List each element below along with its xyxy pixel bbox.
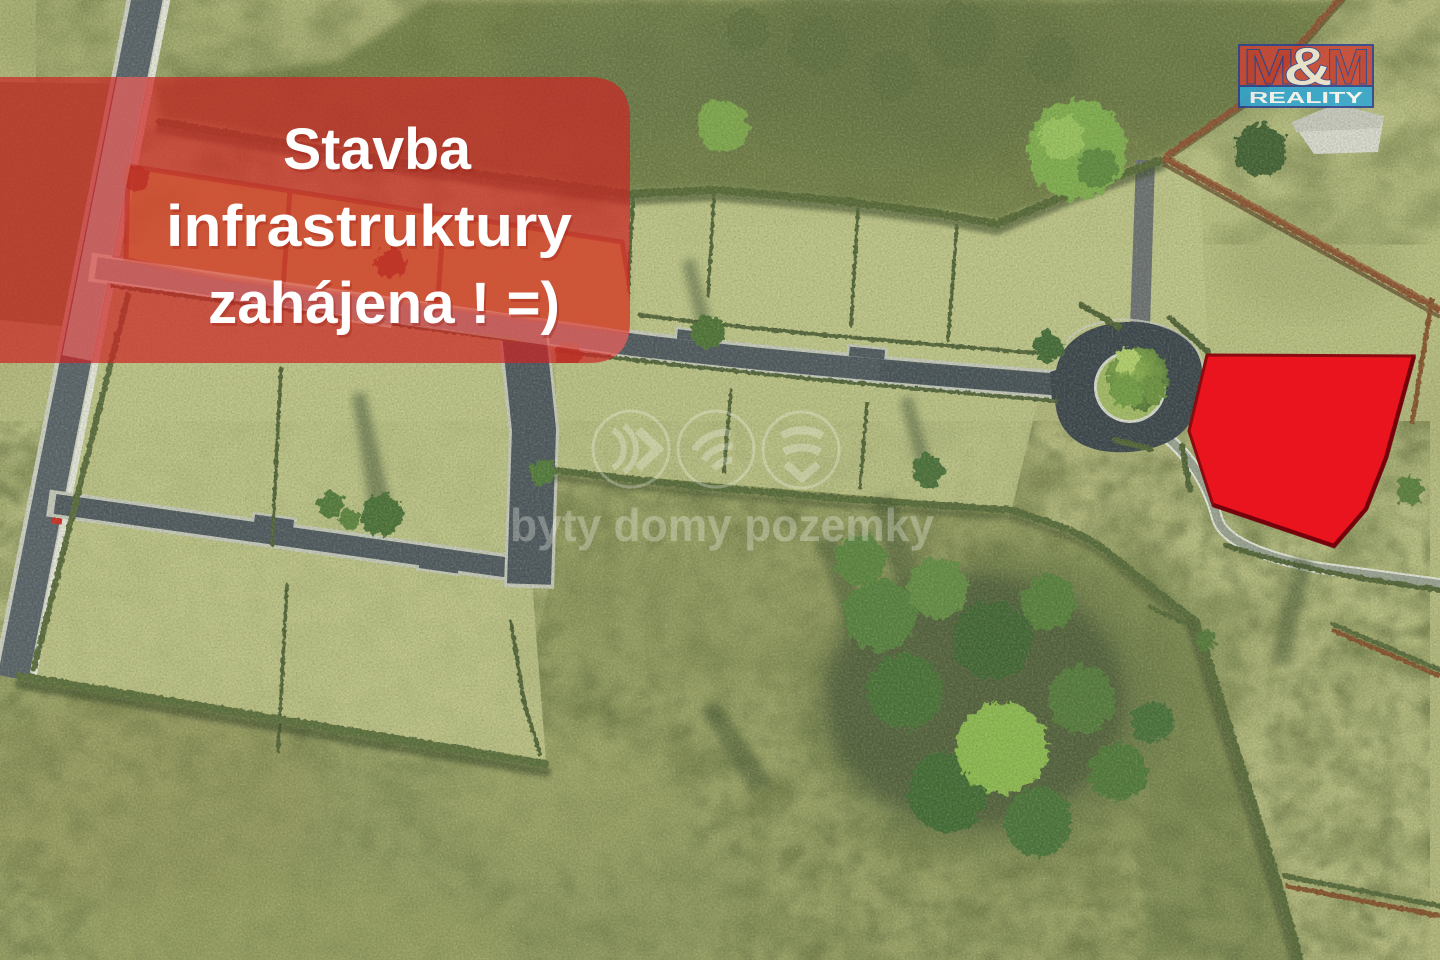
svg-text:byty domy pozemky: byty domy pozemky — [510, 499, 934, 551]
svg-text:REALITY: REALITY — [1249, 90, 1364, 107]
svg-text:&: & — [1283, 37, 1333, 97]
svg-text:zahájena ! =): zahájena ! =) — [208, 271, 560, 336]
svg-text:Stavba: Stavba — [283, 117, 472, 182]
svg-text:infrastruktury: infrastruktury — [166, 194, 572, 259]
